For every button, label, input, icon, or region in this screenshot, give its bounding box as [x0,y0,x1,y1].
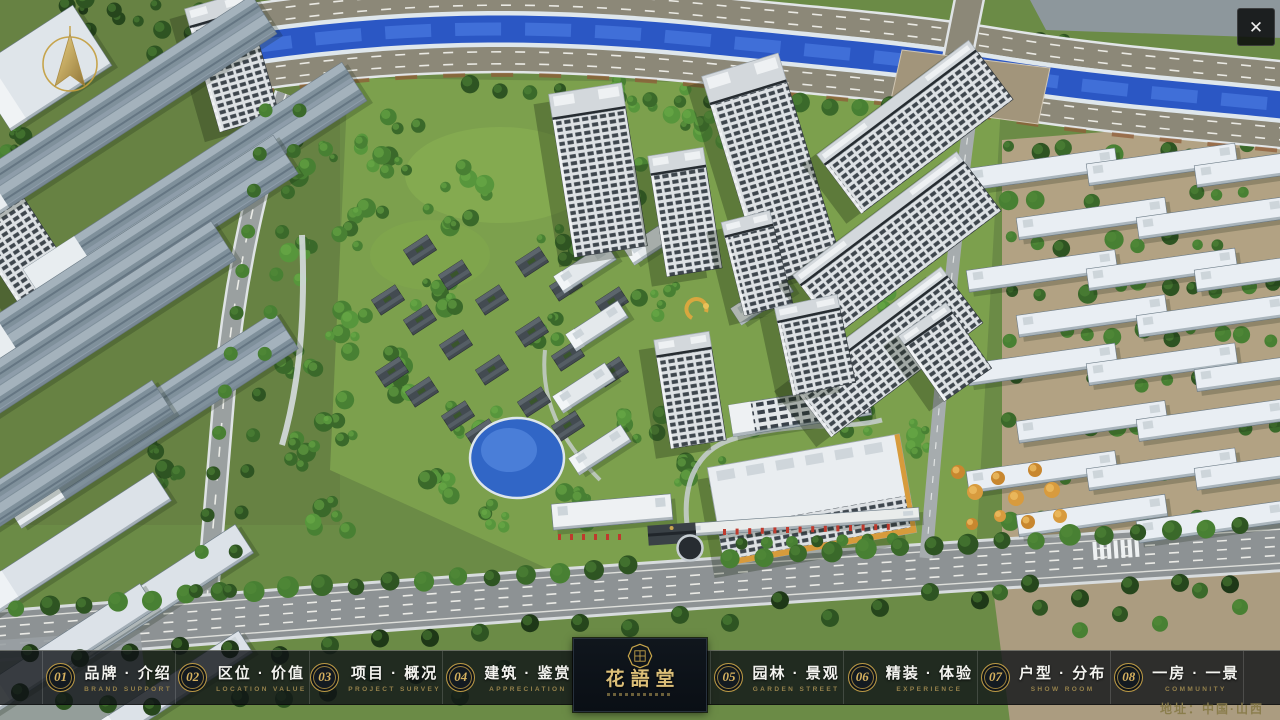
nav-label-zh: 户型 · 分布 [1019,662,1106,683]
nav-number-badge: 05 [714,663,743,692]
close-icon: ✕ [1249,19,1263,36]
nav-item-garden-landscape[interactable]: 05 园林 · 景观 GARDEN STREET [710,651,843,704]
nav-label-zh: 建筑 · 鉴赏 [484,662,571,683]
nav-label-zh: 园林 · 景观 [752,662,839,683]
nav-number-badge: 08 [1114,663,1143,692]
nav-label-en: GARDEN STREET [753,686,840,693]
nav-item-interior-experience[interactable]: 06 精装 · 体验 EXPERIENCE [843,651,976,704]
nav-label-en: SHOW ROOM [1031,686,1095,693]
nav-number-badge: 02 [178,663,207,692]
nav-label-en: COMMUNITY [1165,686,1227,693]
navbar-right-group: 05 园林 · 景观 GARDEN STREET 06 精装 · 体验 EXPE… [710,651,1244,704]
nav-item-project-survey[interactable]: 03 项目 · 概况 PROJECT SURVEY [309,651,442,704]
nav-label-zh: 项目 · 概况 [351,662,438,683]
nav-label-zh: 精装 · 体验 [886,662,973,683]
compass-icon [34,18,106,104]
nav-number-badge: 04 [446,663,475,692]
nav-label-en: BRAND SUPPORT [84,686,172,693]
nav-label-zh: 一房 · 一景 [1152,662,1239,683]
logo-subtitle-decoration [607,693,673,696]
nav-number-badge: 03 [310,663,339,692]
project-logo[interactable]: 花語堂 [573,638,707,712]
nav-label-en: APPRECIATION [489,686,566,693]
navbar-spacer [0,651,42,704]
close-button[interactable]: ✕ [1237,8,1275,46]
navbar-left-group: 01 品牌 · 介绍 BRAND SUPPORT 02 区位 · 价值 LOCA… [42,651,576,704]
nav-label-zh: 区位 · 价值 [218,662,305,683]
nav-label-en: PROJECT SURVEY [348,686,441,693]
project-address: 地址：中国·山西 [1160,700,1264,717]
nav-label-zh: 品牌 · 介绍 [84,662,171,683]
nav-item-architecture[interactable]: 04 建筑 · 鉴赏 APPRECIATION [442,651,576,704]
nav-number-badge: 06 [848,663,877,692]
nav-item-brand-intro[interactable]: 01 品牌 · 介绍 BRAND SUPPORT [42,651,175,704]
masterplan-viewer: ✕ 01 品牌 · 介绍 BRAND SUPPORT 02 区位 · 价值 LO… [0,0,1280,720]
navbar-spacer [1244,651,1280,704]
nav-item-location-value[interactable]: 02 区位 · 价值 LOCATION VALUE [175,651,308,704]
nav-item-room-view[interactable]: 08 一房 · 一景 COMMUNITY [1110,651,1244,704]
nav-label-en: EXPERIENCE [896,686,962,693]
nav-number-badge: 07 [981,663,1010,692]
logo-title: 花語堂 [605,669,680,690]
nav-number-badge: 01 [46,663,75,692]
nav-item-unit-layout[interactable]: 07 户型 · 分布 SHOW ROOM [977,651,1110,704]
logo-seal-icon [627,643,653,669]
nav-label-en: LOCATION VALUE [216,686,306,693]
masterplan-render [0,0,1280,720]
